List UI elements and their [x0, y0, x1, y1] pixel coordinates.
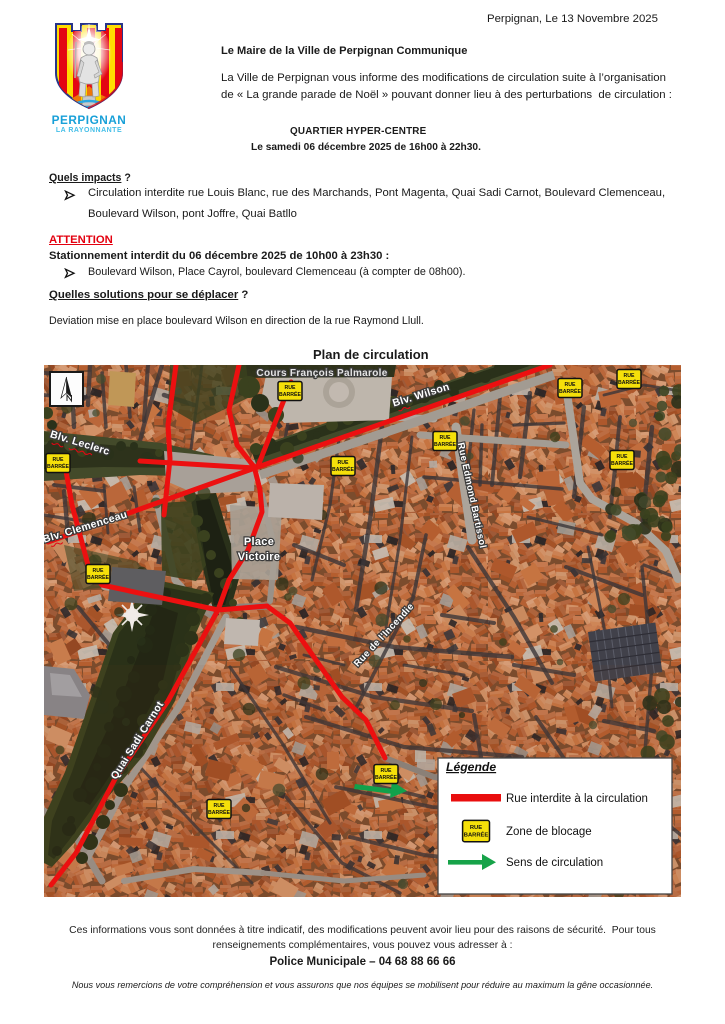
svg-text:BARRÉE: BARRÉE: [618, 378, 640, 386]
svg-text:RUE: RUE: [381, 768, 392, 774]
svg-text:BARRÉE: BARRÉE: [208, 808, 230, 816]
svg-text:Sens de circulation: Sens de circulation: [506, 857, 603, 869]
svg-text:BARRÉE: BARRÉE: [559, 387, 581, 395]
svg-text:RUE: RUE: [285, 385, 296, 391]
svg-text:BARRÉE: BARRÉE: [332, 465, 354, 473]
svg-text:RUE: RUE: [565, 382, 576, 388]
svg-text:Victoire: Victoire: [238, 551, 281, 563]
svg-text:Cours François Palmarole: Cours François Palmarole: [256, 368, 387, 379]
svg-text:PERPIGNAN: PERPIGNAN: [52, 113, 127, 127]
svg-text:BARRÉE: BARRÉE: [87, 573, 109, 581]
svg-text:RUE: RUE: [53, 457, 64, 463]
svg-text:BARRÉE: BARRÉE: [375, 773, 397, 781]
svg-text:RUE: RUE: [338, 460, 349, 466]
svg-text:Place: Place: [244, 536, 274, 548]
svg-text:RUE: RUE: [624, 373, 635, 379]
svg-text:RUE: RUE: [617, 454, 628, 460]
svg-text:Zone de blocage: Zone de blocage: [506, 826, 592, 838]
svg-text:BARRÉE: BARRÉE: [611, 459, 633, 467]
svg-text:BARRÉE: BARRÉE: [434, 440, 456, 448]
svg-text:Rue interdite à la circulation: Rue interdite à la circulation: [506, 793, 648, 805]
svg-text:BARRÉE: BARRÉE: [47, 462, 69, 470]
svg-text:RUE: RUE: [470, 825, 482, 831]
svg-text:RUE: RUE: [214, 803, 225, 809]
svg-text:RUE: RUE: [440, 435, 451, 441]
svg-text:BARRÉE: BARRÉE: [279, 390, 301, 398]
svg-text:LA RAYONNANTE: LA RAYONNANTE: [56, 127, 122, 134]
svg-text:RUE: RUE: [93, 568, 104, 574]
svg-text:Légende: Légende: [446, 760, 496, 774]
svg-text:BARRÉE: BARRÉE: [464, 831, 489, 839]
